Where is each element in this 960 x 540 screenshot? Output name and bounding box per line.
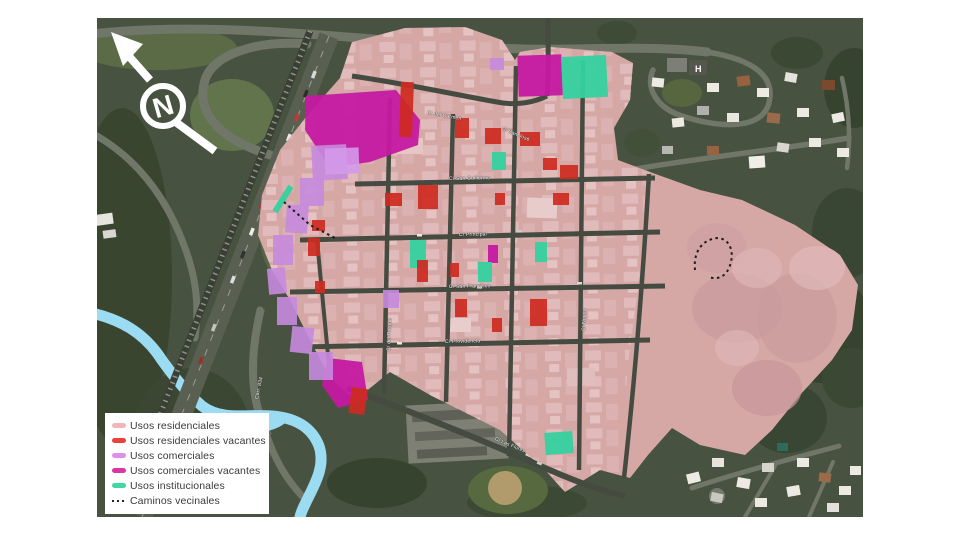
legend-label: Usos residenciales bbox=[130, 420, 220, 432]
legend-swatch-institucional bbox=[112, 483, 126, 488]
page: H bbox=[0, 0, 960, 540]
legend-label: Caminos vecinales bbox=[130, 495, 220, 507]
legend-label: Usos comerciales bbox=[130, 450, 214, 462]
legend-swatch-residencial bbox=[112, 423, 126, 428]
legend-swatch-caminos-dotted bbox=[112, 500, 126, 502]
legend-label: Usos residenciales vacantes bbox=[130, 435, 266, 447]
helipad-mark: H bbox=[695, 64, 702, 74]
legend-item-comercial-vacante: Usos comerciales vacantes bbox=[112, 463, 263, 478]
legend-item-institucional: Usos institucionales bbox=[112, 478, 263, 493]
legend-swatch-comercial bbox=[112, 453, 126, 458]
map-frame: H bbox=[97, 18, 863, 517]
legend-item-residencial-vacante: Usos residenciales vacantes bbox=[112, 433, 263, 448]
legend-item-comercial: Usos comerciales bbox=[112, 448, 263, 463]
legend-label: Usos comerciales vacantes bbox=[130, 465, 260, 477]
legend-swatch-residencial-vacante bbox=[112, 438, 126, 443]
legend-swatch-comercial-vacante bbox=[112, 468, 126, 473]
legend-label: Usos institucionales bbox=[130, 480, 225, 492]
legend-item-residencial: Usos residenciales bbox=[112, 418, 263, 433]
legend-item-caminos: Caminos vecinales bbox=[112, 493, 263, 508]
map-legend: Usos residenciales Usos residenciales va… bbox=[105, 413, 269, 514]
